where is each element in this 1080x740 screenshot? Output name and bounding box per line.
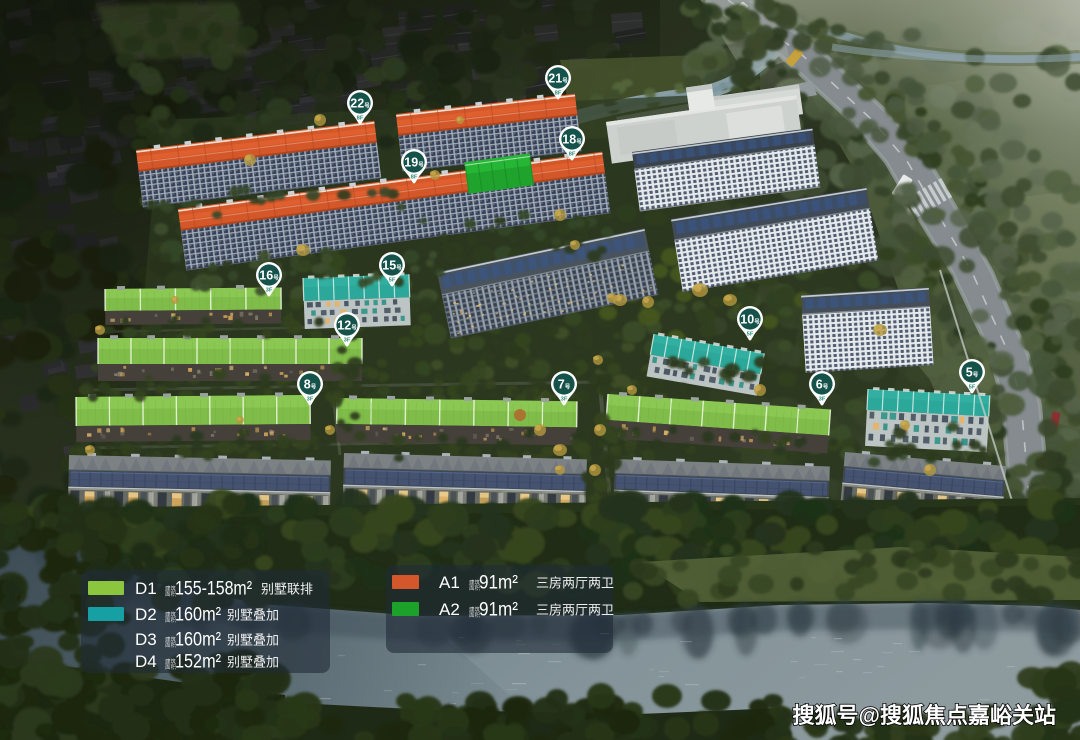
svg-text:3F: 3F bbox=[561, 397, 568, 403]
svg-text:3F: 3F bbox=[266, 288, 273, 294]
svg-text:152m²: 152m² bbox=[175, 652, 221, 673]
svg-text:5F: 5F bbox=[747, 332, 754, 338]
svg-text:155-158m²: 155-158m² bbox=[175, 579, 252, 600]
svg-text:别墅叠加: 别墅叠加 bbox=[227, 655, 279, 670]
svg-text:D3: D3 bbox=[135, 630, 157, 649]
svg-text:搜狐号@搜狐焦点嘉峪关站: 搜狐号@搜狐焦点嘉峪关站 bbox=[793, 703, 1056, 728]
svg-text:D2: D2 bbox=[135, 605, 157, 624]
svg-text:三房两厅两卫: 三房两厅两卫 bbox=[536, 576, 614, 591]
svg-text:3F: 3F bbox=[307, 397, 314, 403]
svg-text:160m²: 160m² bbox=[175, 630, 221, 651]
svg-text:8F: 8F bbox=[555, 91, 562, 97]
svg-text:8F: 8F bbox=[357, 116, 364, 122]
svg-text:别墅叠加: 别墅叠加 bbox=[227, 633, 279, 648]
svg-text:5F: 5F bbox=[389, 278, 396, 284]
svg-text:A2: A2 bbox=[439, 600, 460, 619]
svg-text:A1: A1 bbox=[439, 573, 460, 592]
svg-text:5F: 5F bbox=[969, 385, 976, 391]
svg-text:160m²: 160m² bbox=[175, 605, 221, 626]
svg-text:8F: 8F bbox=[411, 175, 418, 181]
svg-text:8F: 8F bbox=[569, 152, 576, 158]
svg-text:别墅联排: 别墅联排 bbox=[261, 582, 313, 597]
svg-text:3F: 3F bbox=[819, 397, 826, 403]
svg-text:3F: 3F bbox=[344, 338, 351, 344]
svg-text:别墅叠加: 别墅叠加 bbox=[227, 608, 279, 623]
svg-text:91m²: 91m² bbox=[479, 573, 518, 594]
svg-text:三房两厅两卫: 三房两厅两卫 bbox=[536, 603, 614, 618]
svg-text:91m²: 91m² bbox=[479, 600, 518, 621]
svg-text:D4: D4 bbox=[135, 652, 157, 671]
svg-text:D1: D1 bbox=[135, 579, 157, 598]
